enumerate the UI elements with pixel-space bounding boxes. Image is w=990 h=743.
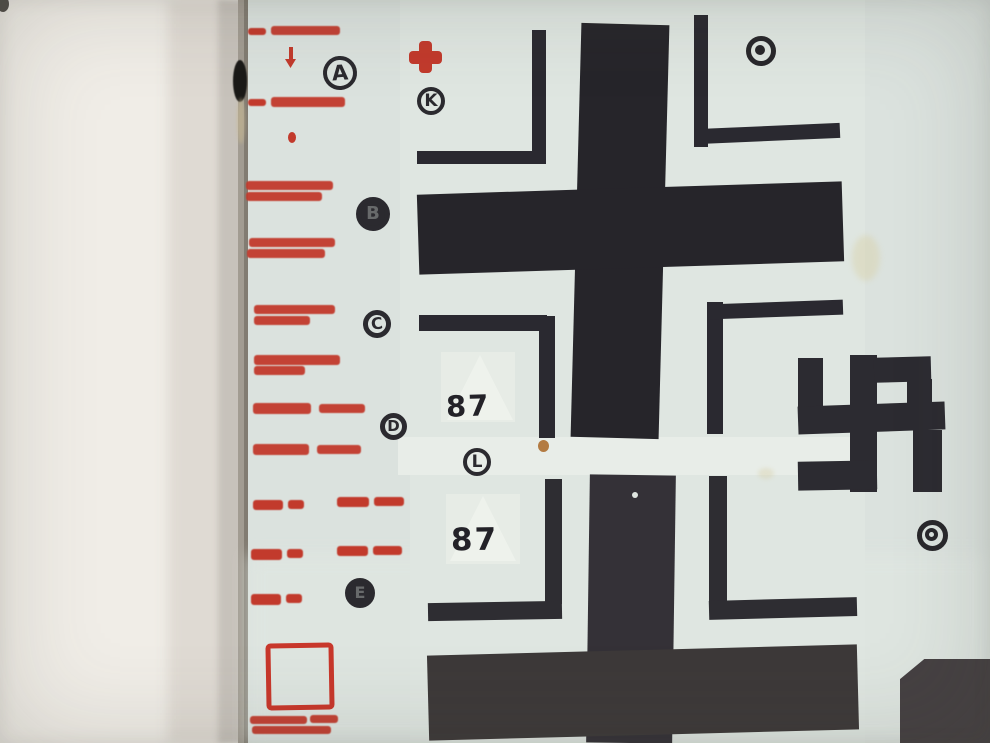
ring-mark-bottom-right-inner [925, 528, 938, 541]
ring-mark-top-right-inner [755, 45, 765, 55]
stencil-row8-a [251, 549, 282, 560]
lower-cross-bracket-ul-horiz [428, 601, 562, 621]
upper-cross-bracket-ll-vert [539, 316, 555, 438]
stencil-row5-part2 [319, 404, 365, 413]
dust-dot-on-bar [632, 492, 638, 498]
upper-cross-bracket-ul-vert [532, 30, 546, 164]
red-arrow-stem [289, 47, 293, 60]
upper-cross-bracket-lr-vert [707, 302, 723, 434]
red-drop-mark [288, 132, 296, 143]
upper-cross-bracket-ul-horiz [417, 151, 546, 164]
number-87-2: 87 [451, 522, 499, 559]
lower-cross-bracket-ur-vert [709, 476, 727, 602]
stencil-block2-line2 [247, 249, 325, 258]
swastika-east-hook [913, 430, 942, 492]
stencil-block4-line1 [254, 355, 340, 365]
lower-cross-horizontal-bar [427, 644, 859, 740]
yellow-stain-small [758, 468, 774, 479]
circled-letter-K: K [417, 87, 445, 115]
stencil-row7-b [288, 500, 304, 509]
stencil-row8-b [287, 549, 303, 558]
rust-spot [538, 440, 549, 452]
upper-cross-bracket-ur-vert [694, 15, 708, 147]
upper-cross-horizontal-bar [417, 181, 844, 274]
stencil-row2-text [271, 97, 345, 107]
corner-black-decal [900, 659, 990, 743]
stencil-block2-line1 [249, 238, 335, 247]
stencil-row5-part1 [253, 403, 311, 414]
stencil-row2-mark [248, 99, 266, 106]
circled-letter-D: D [380, 413, 407, 440]
number-87-1: 87 [445, 388, 491, 424]
edge-stain [237, 98, 245, 144]
circled-letter-E: E [345, 578, 375, 608]
swastika-bottom-arm [798, 460, 877, 490]
stencil-block1-line1 [246, 181, 333, 190]
lower-cross-bracket-ul-vert [545, 479, 562, 604]
circled-letter-B: B [356, 197, 390, 231]
ring-mark-top-right [746, 36, 776, 66]
stencil-row1-mark [248, 28, 266, 35]
upper-cross-bracket-ll-horiz [419, 315, 547, 331]
stencil-row8-d [373, 546, 402, 555]
stencil-row7-d [374, 497, 404, 506]
stencil-footer-line1a [250, 716, 307, 724]
stencil-row8-c [337, 546, 368, 556]
ring-mark-bottom-right [917, 520, 948, 551]
lower-cross-bracket-ur-horiz [709, 597, 857, 620]
stencil-block1-line2 [246, 192, 322, 201]
stencil-row7-a [253, 500, 283, 510]
red-outline-square [265, 642, 334, 710]
swastika-right-drop [907, 379, 932, 429]
stencil-block3-line1 [254, 305, 335, 314]
stencil-footer-line2 [252, 726, 331, 734]
stencil-row6-part1 [253, 444, 309, 455]
circled-letter-L: L [463, 448, 491, 476]
stencil-footer-line1b [310, 715, 338, 723]
stencil-row6-part2 [317, 445, 361, 454]
stencil-block3-line2 [254, 316, 310, 325]
stencil-block4-line2 [254, 366, 305, 375]
edge-ink-blob [233, 60, 247, 102]
stencil-row9-a [251, 594, 281, 605]
stencil-row7-c [337, 497, 369, 507]
stencil-row9-b [286, 594, 302, 603]
stencil-row1-text [271, 26, 340, 35]
swastika-left-vertical [798, 358, 823, 410]
yellow-stain [852, 235, 880, 281]
red-cross-horizontal [409, 51, 442, 64]
photo-canvas: AKBCDLE8787 [0, 0, 990, 743]
